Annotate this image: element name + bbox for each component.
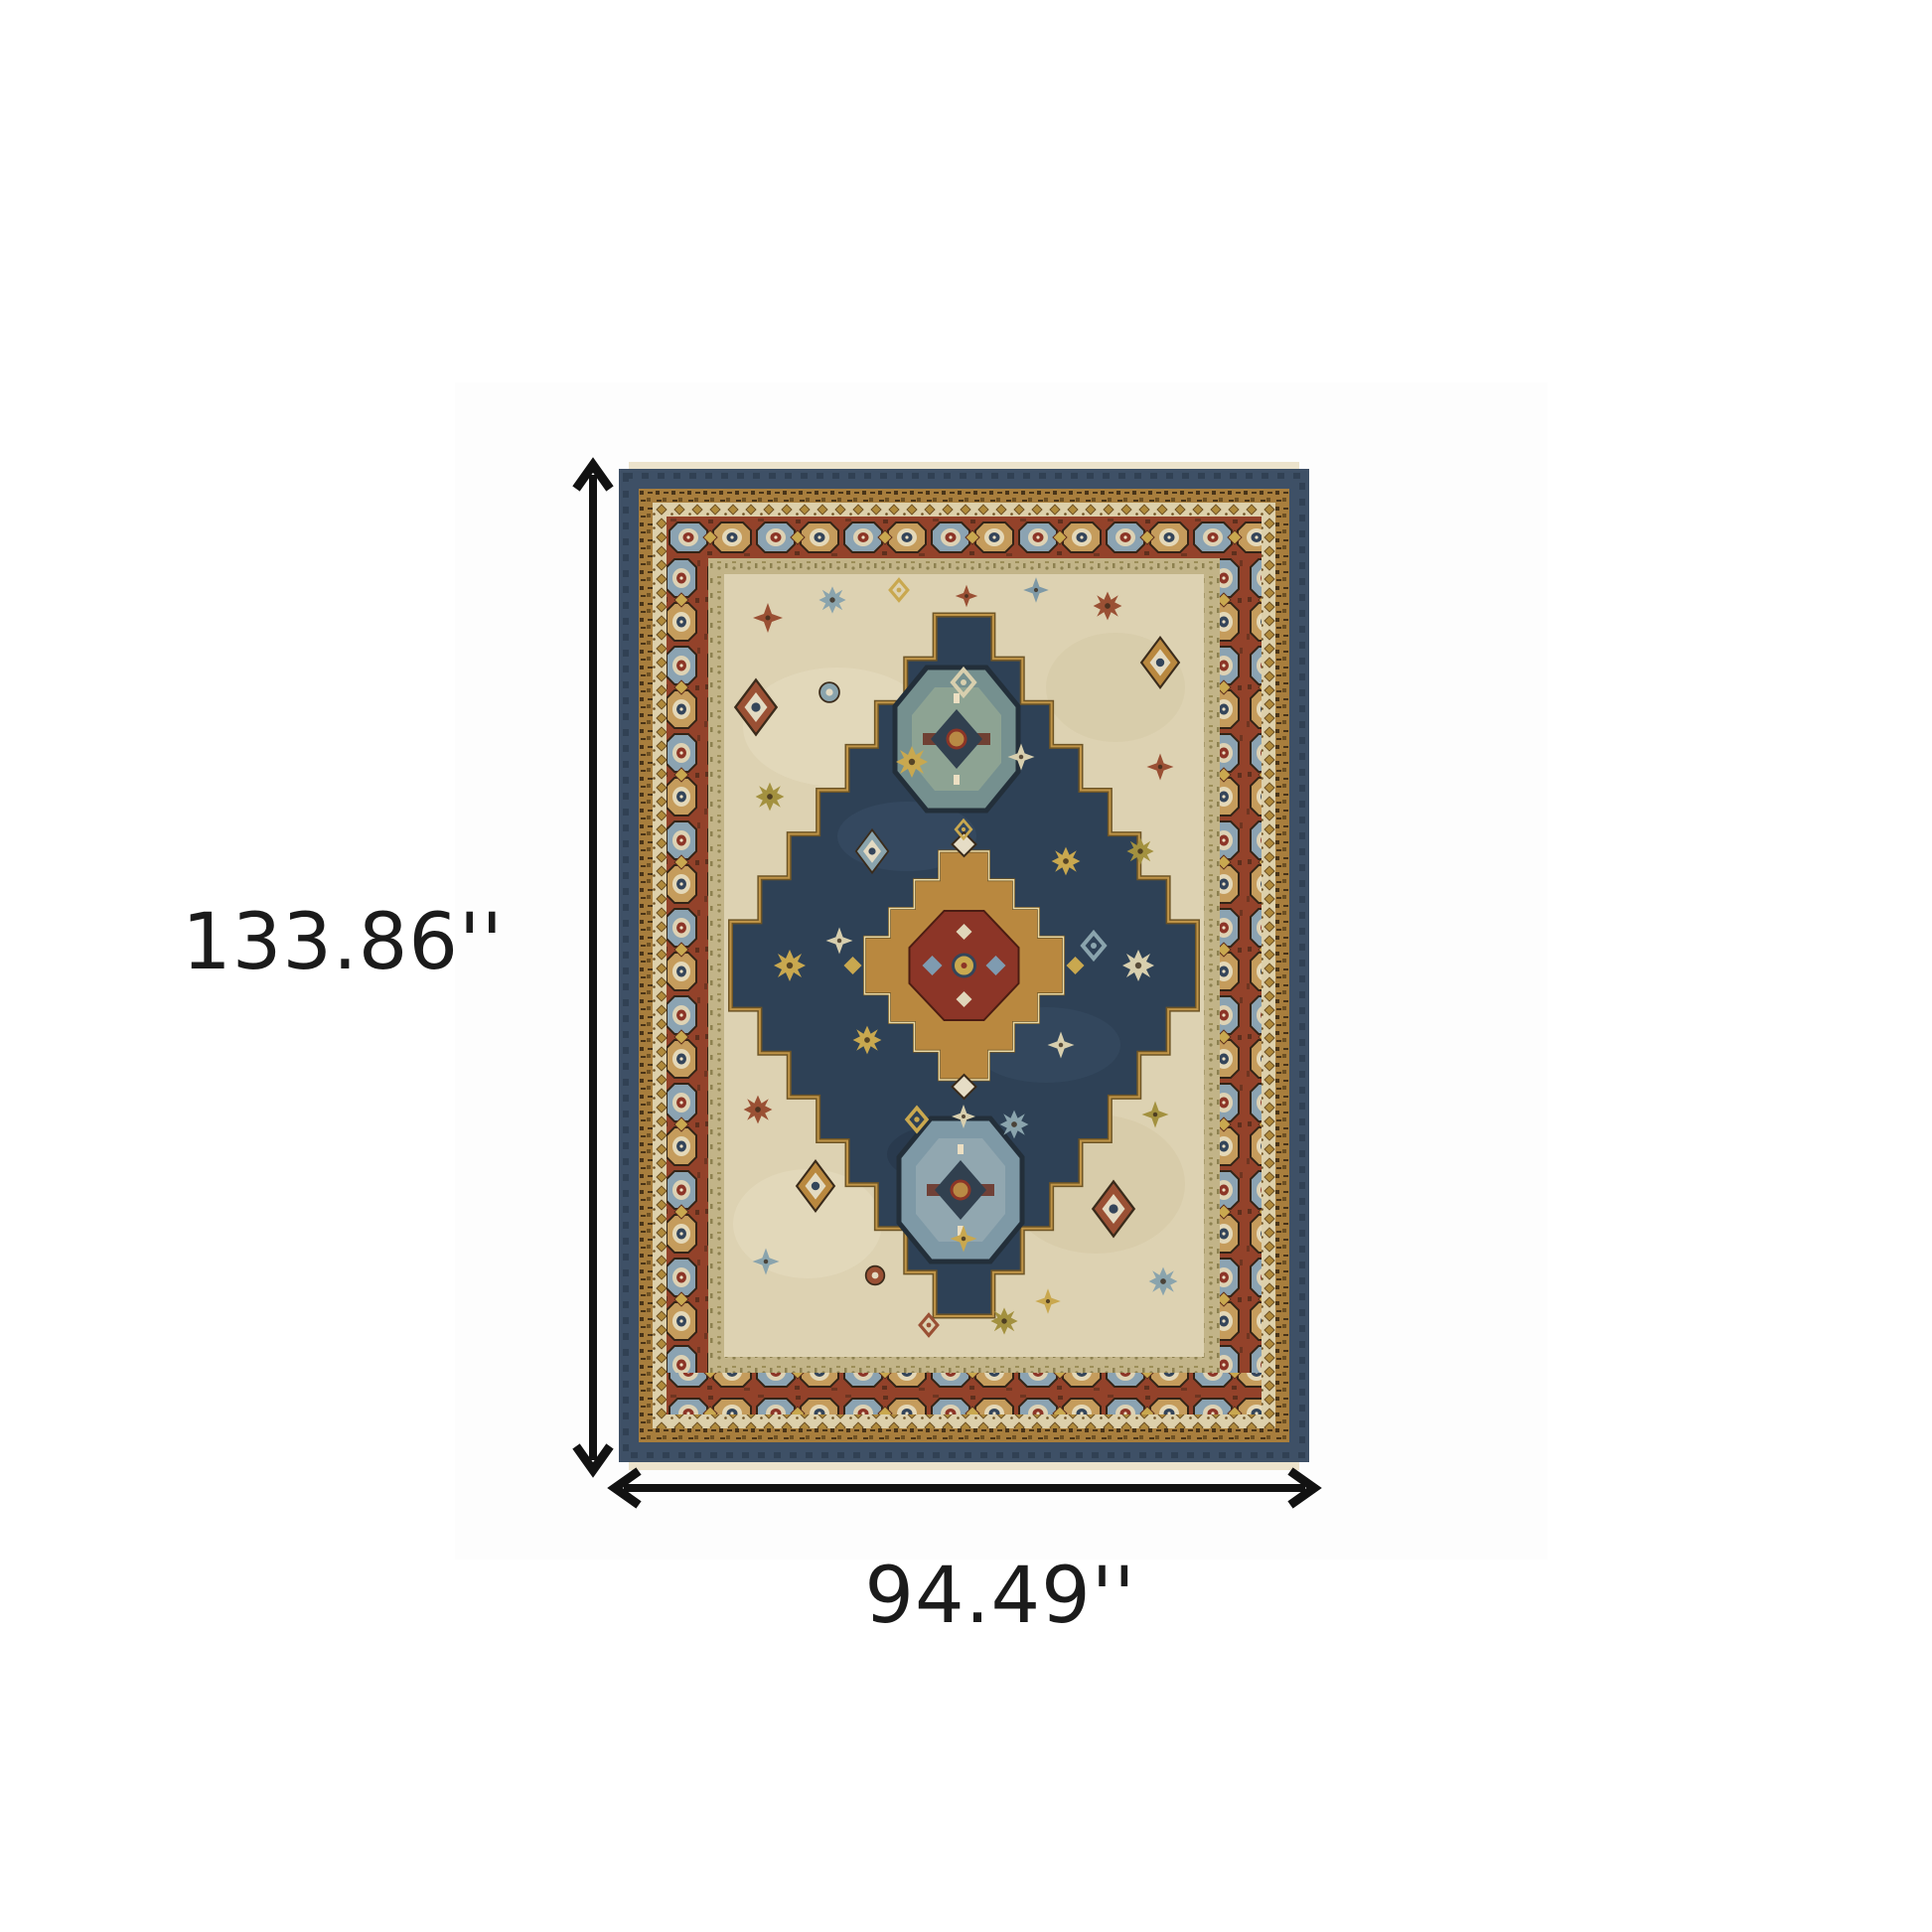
rug-motif-rosette — [866, 1266, 885, 1285]
rug-motif-star8 — [774, 950, 806, 981]
height-dimension-label: 133.86'' — [182, 904, 504, 981]
rug-motif-star8 — [1000, 1111, 1029, 1139]
rug-motif-star8 — [1052, 847, 1081, 876]
rug-motif-rosette — [819, 682, 839, 702]
width-dimension-label: 94.49'' — [864, 1558, 1135, 1635]
rug-fringe-bottom — [629, 1461, 1299, 1470]
rug-motif-star8 — [1126, 837, 1153, 864]
rug-motif-star8 — [990, 1307, 1017, 1334]
rug-motif-star8 — [1094, 592, 1122, 621]
rug-motif-star8 — [756, 783, 785, 812]
rug-motif-star8 — [853, 1026, 882, 1055]
rug-motif-star8 — [896, 746, 928, 778]
rug-motif-star8 — [744, 1096, 773, 1124]
rug-motif-star8 — [818, 586, 845, 613]
rug-image — [619, 462, 1309, 1470]
rug-motif-star8 — [1122, 950, 1154, 981]
rug-fringe-top — [629, 462, 1299, 470]
product-dimension-image: 133.86'' 94.49'' — [0, 0, 1932, 1932]
rug-motif-star8 — [1149, 1267, 1178, 1296]
